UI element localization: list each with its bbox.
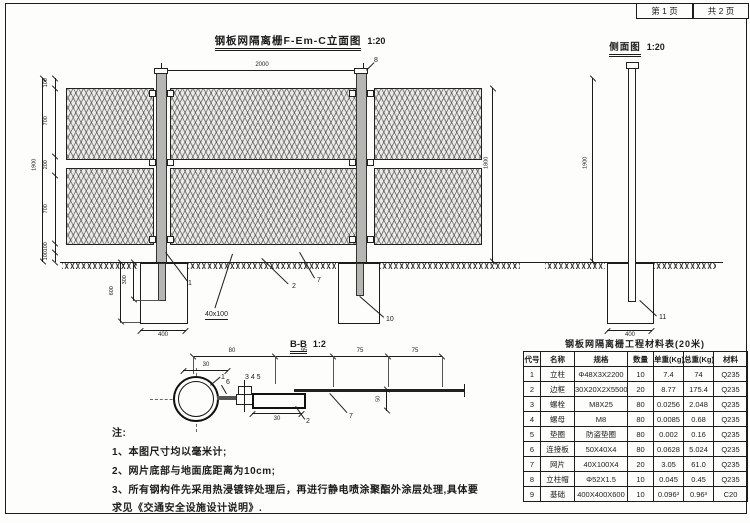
bolt-square — [349, 236, 356, 243]
col-header: 数量 — [628, 352, 654, 367]
cell: 10 — [628, 472, 654, 487]
dim-foundation-width: 400 — [148, 332, 178, 338]
cell: 4 — [524, 412, 541, 427]
cell: Φ52X1.5 — [575, 472, 628, 487]
fence-post — [356, 72, 367, 264]
mesh-panel-middle — [170, 88, 358, 245]
cell: 3.05 — [654, 457, 684, 472]
cell: M8X25 — [575, 397, 628, 412]
cell: 0.045 — [654, 472, 684, 487]
bolt-square — [167, 159, 174, 166]
cell: 1 — [524, 367, 541, 382]
dim-section-95: 95 — [284, 348, 324, 354]
table-row: 6连接板50X40X4800.06285.024Q235 — [524, 442, 748, 457]
elevation-title: 钢板网隔离栅F-Em-C立面图 — [215, 35, 362, 51]
note-line-2: 2、网片底部与地面底距离为10cm; — [112, 462, 275, 477]
dim-line-foundation-width — [140, 330, 186, 331]
ground-hatch — [654, 263, 716, 269]
side-view-title-block: 侧面图1:20 — [592, 37, 682, 55]
table-row: 9基础400X400X600100.096³0.96³C20 — [524, 487, 748, 502]
elevation-title-block: 钢板网隔离栅F-Em-C立面图1:20 — [150, 31, 450, 49]
dim-line-offset — [183, 370, 228, 371]
callout-side-foundation: 11 — [659, 314, 666, 321]
cell: 61.0 — [684, 457, 714, 472]
callout-section-mesh: 7 — [349, 413, 353, 420]
ground-hatch — [380, 263, 520, 269]
dim-line-post-embed — [133, 262, 134, 300]
cell: 垫圈 — [541, 427, 575, 442]
table-row: 3螺栓M8X25800.02562.048Q235 — [524, 397, 748, 412]
post-cap — [154, 68, 168, 74]
mesh-panel-left — [66, 88, 154, 245]
callout-bolt-set: 3 4 5 — [245, 374, 261, 381]
col-header: 单重(Kg) — [654, 352, 684, 367]
note-line-1: 1、本图尺寸均以毫米计; — [112, 443, 227, 458]
cell: 0.002 — [654, 427, 684, 442]
cell: 基础 — [541, 487, 575, 502]
table-header-row: 代号 名称 规格 数量 单重(Kg) 总重(Kg) 材料 — [524, 352, 748, 367]
cell: 8 — [524, 472, 541, 487]
dim-line-frame-width — [252, 413, 302, 414]
table-row: 7网片40X100X4203.0561.0Q235 — [524, 457, 748, 472]
side-view-title: 侧面图 — [609, 42, 641, 57]
dim-line-total-height — [42, 78, 43, 262]
dim-line-overlap — [386, 389, 387, 411]
dim-ext — [120, 322, 140, 323]
cell: 螺母 — [541, 412, 575, 427]
cell: M8 — [575, 412, 628, 427]
callout-foundation: 10 — [386, 316, 394, 323]
notes-heading: 注: — [112, 424, 126, 439]
dim-mesh-height: 1800 — [484, 157, 490, 169]
cell: 80 — [628, 442, 654, 457]
cell: Φ48X3X2200 — [575, 367, 628, 382]
cell: Q235 — [714, 442, 748, 457]
cell: 连接板 — [541, 442, 575, 457]
dim-line-foundation-depth — [120, 262, 121, 322]
dim-section-75a: 75 — [340, 348, 380, 354]
callout-frame: 2 — [292, 283, 296, 290]
dim-line-side-height — [592, 78, 593, 262]
cell: 0.16 — [684, 427, 714, 442]
materials-table: 代号 名称 规格 数量 单重(Kg) 总重(Kg) 材料 1立柱Φ48X3X22… — [523, 351, 748, 502]
section-frame — [252, 393, 306, 409]
dim-chain-2: 200 — [44, 160, 50, 169]
note-line-3: 3、所有钢构件先采用热浸镀锌处理后，再进行静电喷涂聚酯外涂层处理,具体要 — [112, 481, 478, 496]
dim-chain-4: 100 — [44, 242, 50, 251]
post-embedded — [158, 263, 166, 301]
cell: 74 — [684, 367, 714, 382]
page-number: 第 1 页 — [636, 3, 693, 19]
bolt-square — [149, 236, 156, 243]
col-header: 总重(Kg) — [684, 352, 714, 367]
cell: 40X100X4 — [575, 457, 628, 472]
mesh-panel-right — [374, 88, 482, 245]
cell: 2 — [524, 382, 541, 397]
cell: 80 — [628, 427, 654, 442]
cell: Q235 — [714, 472, 748, 487]
table-row: 4螺母M8800.00850.68Q235 — [524, 412, 748, 427]
callout-plate: 6 — [226, 379, 230, 386]
elevation-scale: 1:20 — [367, 36, 385, 46]
dim-chain-3: 700 — [44, 204, 50, 213]
cell: 30X20X2X5500 — [575, 382, 628, 397]
materials-table-title: 钢板网隔离栅工程材料表(20米) — [523, 337, 747, 350]
panel-rail — [170, 159, 358, 169]
cell: Q235 — [714, 397, 748, 412]
cell: 3 — [524, 397, 541, 412]
bolt-axis — [244, 380, 245, 412]
cell: Q235 — [714, 457, 748, 472]
table-row: 8立柱帽Φ52X1.5100.0450.45Q235 — [524, 472, 748, 487]
post-embedded — [356, 263, 364, 296]
cell: 20 — [628, 382, 654, 397]
cell: 80 — [628, 412, 654, 427]
bolt-square — [167, 236, 174, 243]
cell: 网片 — [541, 457, 575, 472]
cell: 立柱 — [541, 367, 575, 382]
dim-line-top — [161, 70, 363, 71]
dim-line-mesh-height — [492, 88, 493, 262]
callout-mesh: 7 — [317, 277, 321, 284]
section-mesh — [294, 389, 464, 392]
cell: 7.4 — [654, 367, 684, 382]
col-header: 名称 — [541, 352, 575, 367]
cell: 立柱帽 — [541, 472, 575, 487]
bolt-square — [367, 90, 374, 97]
dim-chain-5: 100 — [44, 251, 50, 260]
dim-overlap-50: 50 — [376, 396, 382, 402]
bolt-square — [367, 159, 374, 166]
section-post-inner — [178, 381, 214, 417]
bolt-square — [149, 159, 156, 166]
side-post-cap — [626, 62, 639, 69]
bolt-square — [367, 236, 374, 243]
callout-section-frame: 2 — [306, 418, 310, 425]
dim-ext — [388, 356, 389, 387]
cell: 400X400X600 — [575, 487, 628, 502]
panel-rail — [374, 159, 482, 169]
cell: Q235 — [714, 412, 748, 427]
bolt-square — [349, 159, 356, 166]
dim-chain-line — [55, 78, 56, 262]
cell: 0.96³ — [684, 487, 714, 502]
dim-frame-30: 30 — [263, 416, 291, 422]
page-number-box: 第 1 页 共 2 页 — [636, 3, 749, 19]
cell: 7 — [524, 457, 541, 472]
cell: 螺栓 — [541, 397, 575, 412]
col-header: 规格 — [575, 352, 628, 367]
cell: 8.77 — [654, 382, 684, 397]
fence-post — [156, 72, 167, 264]
cell: Q235 — [714, 427, 748, 442]
cell: 80 — [628, 397, 654, 412]
bolt-square — [149, 90, 156, 97]
bolt-square — [167, 90, 174, 97]
cell: 10 — [628, 487, 654, 502]
cell: 5 — [524, 427, 541, 442]
cell: 0.096³ — [654, 487, 684, 502]
side-post — [628, 66, 636, 302]
mesh-opening-label: 40x100 — [205, 311, 228, 320]
cell: 5.024 — [684, 442, 714, 457]
cell: 20 — [628, 457, 654, 472]
cell: 边框 — [541, 382, 575, 397]
dim-total-height: 1900 — [32, 159, 38, 171]
callout-section-post: 1 — [221, 374, 225, 381]
dim-ext — [442, 356, 443, 387]
note-line-4: 求见《交通安全设施设计说明》. — [112, 499, 262, 514]
panel-rail — [66, 159, 154, 169]
dim-line-side-foundation-width — [607, 330, 652, 331]
dim-chain-1: 700 — [44, 116, 50, 125]
dim-post-embed: 300 — [123, 275, 129, 284]
ground-hatch — [188, 263, 336, 269]
cell: 0.0256 — [654, 397, 684, 412]
col-header: 代号 — [524, 352, 541, 367]
cell: 50X40X4 — [575, 442, 628, 457]
cell: 175.4 — [684, 382, 714, 397]
col-header: 材料 — [714, 352, 748, 367]
callout-post: 1 — [188, 280, 192, 287]
cell: 防盗垫圈 — [575, 427, 628, 442]
cell: C20 — [714, 487, 748, 502]
cell: Q235 — [714, 367, 748, 382]
cell: 0.45 — [684, 472, 714, 487]
cell: 0.68 — [684, 412, 714, 427]
dim-section-75b: 75 — [395, 348, 435, 354]
bolt-square — [349, 90, 356, 97]
table-row: 2边框30X20X2X5500208.77175.4Q235 — [524, 382, 748, 397]
dim-line-section-top — [193, 356, 442, 357]
cell: 0.0628 — [654, 442, 684, 457]
dim-section-80: 80 — [212, 348, 252, 354]
dim-ext — [133, 300, 160, 301]
dim-offset-30: 30 — [192, 362, 220, 368]
side-view-scale: 1:20 — [647, 42, 665, 52]
section-mesh-end — [464, 384, 465, 397]
table-row: 1立柱Φ48X3X2200107.474Q235 — [524, 367, 748, 382]
page-total: 共 2 页 — [693, 3, 749, 19]
dim-ext — [333, 356, 334, 387]
dim-side-height: 1900 — [583, 157, 589, 169]
callout-post-cap: 8 — [374, 57, 378, 64]
cell: 2.048 — [684, 397, 714, 412]
table-row: 5垫圈防盗垫圈800.0020.16Q235 — [524, 427, 748, 442]
cell: 6 — [524, 442, 541, 457]
ground-hatch — [62, 263, 138, 269]
dim-ext — [275, 356, 276, 384]
dim-top-width: 2000 — [240, 62, 284, 68]
drawing-sheet: 第 1 页 共 2 页 钢板网隔离栅F-Em-C立面图1:20 2000 — [0, 0, 750, 523]
cell: 0.0085 — [654, 412, 684, 427]
cell: 9 — [524, 487, 541, 502]
dim-foundation-depth: 600 — [110, 286, 116, 295]
cell: Q235 — [714, 382, 748, 397]
cell: 10 — [628, 367, 654, 382]
